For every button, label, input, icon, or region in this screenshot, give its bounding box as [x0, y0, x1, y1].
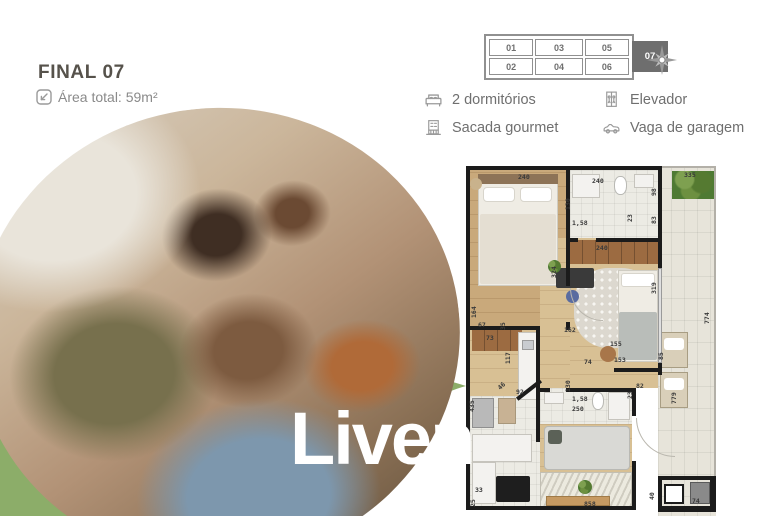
wall [536, 392, 540, 442]
dimension-label: 82 [636, 382, 644, 390]
stove [496, 476, 530, 502]
kitchen-sink [522, 340, 534, 350]
wall [466, 166, 662, 170]
terrace-railing [714, 166, 716, 512]
toilet-2 [592, 392, 604, 410]
wall [466, 506, 636, 510]
dimension-label: 25 [469, 499, 477, 507]
terrace-railing [662, 166, 716, 168]
lounge-pillow [664, 338, 684, 350]
bed-2-blanket [619, 312, 657, 360]
listing-page: FINAL 07 Área total: 59m² 010305020406 0… [0, 0, 782, 516]
wall [566, 388, 632, 392]
pillow [483, 187, 515, 202]
dimension-label: 324 [550, 266, 558, 278]
wall [658, 476, 662, 510]
wall [658, 238, 662, 268]
dimension-label: 1,58 [572, 395, 588, 403]
window [658, 268, 662, 363]
dimension-label: 117 [504, 352, 512, 364]
plant-living [578, 480, 592, 494]
dimension-label: 130 [564, 198, 572, 210]
dimension-label: 67 [478, 321, 486, 329]
dimension-label: 250 [572, 405, 584, 413]
wall [570, 238, 578, 242]
wall [614, 368, 662, 372]
dimension-label: 92 [516, 388, 524, 396]
kitchen-counter-2 [472, 462, 496, 504]
terrace-bench [664, 484, 684, 504]
dimension-label: 335 [684, 171, 696, 179]
dimension-label: 23 [626, 214, 634, 222]
dimension-label: 83 [650, 216, 658, 224]
wall [658, 166, 662, 238]
kitchen-cabinet [472, 329, 522, 351]
dimension-label: 240 [592, 177, 604, 185]
dimension-label: 162 [564, 326, 576, 334]
dimension-label: 1,58 [572, 219, 588, 227]
nightstand [470, 178, 482, 190]
wall [658, 476, 716, 480]
wall [596, 238, 658, 242]
wall [710, 476, 716, 512]
dimension-label: 858 [584, 500, 596, 508]
dimension-label: 164 [470, 306, 478, 318]
dimension-label: 74 [584, 358, 592, 366]
wall [632, 461, 636, 510]
dimension-label: 779 [670, 392, 678, 404]
wall [658, 506, 716, 512]
brand-watermark: Liven [290, 402, 473, 476]
dimension-label: 23 [626, 391, 634, 399]
lounge-pillow [664, 378, 684, 390]
wall [566, 166, 570, 286]
wardrobe [570, 240, 658, 264]
kitchen-table [498, 398, 516, 424]
dimension-label: 85 [657, 352, 665, 360]
dimension-label: 774 [703, 312, 711, 324]
tv-bench [546, 496, 610, 506]
wall [540, 388, 550, 392]
toilet-1 [614, 176, 627, 195]
dimension-label: 240 [596, 244, 608, 252]
floor-plan: 2402409883233351301,58240324319774164673… [466, 166, 720, 516]
dimension-label: 74 [692, 497, 700, 505]
pillow [520, 187, 552, 202]
dimension-label: 240 [518, 173, 530, 181]
dimension-label: 73 [486, 334, 494, 342]
sofa-pillow [548, 430, 562, 444]
dimension-label: 319 [650, 282, 658, 294]
door-swing [636, 418, 675, 457]
dimension-label: 35 [499, 322, 507, 330]
dimension-label: 153 [614, 356, 626, 364]
sink-1 [634, 174, 654, 188]
sink-2 [544, 392, 564, 404]
dimension-label: 130 [564, 380, 572, 392]
kitchen-counter [472, 434, 532, 462]
bed-duvet [480, 214, 556, 284]
desk [556, 268, 594, 288]
dimension-label: 98 [650, 188, 658, 196]
dimension-label: 155 [610, 340, 622, 348]
dimension-label: 33 [475, 486, 483, 494]
dimension-label: 40 [648, 492, 656, 500]
